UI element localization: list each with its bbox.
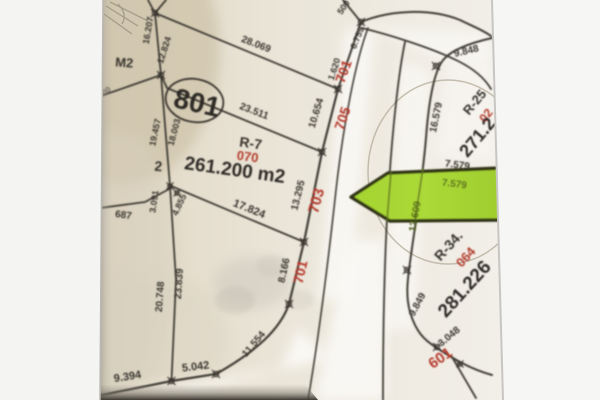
svg-text:23.839: 23.839 bbox=[173, 268, 186, 300]
svg-text:20.748: 20.748 bbox=[154, 281, 167, 313]
svg-text:2: 2 bbox=[154, 158, 163, 175]
svg-text:M2: M2 bbox=[115, 54, 134, 70]
